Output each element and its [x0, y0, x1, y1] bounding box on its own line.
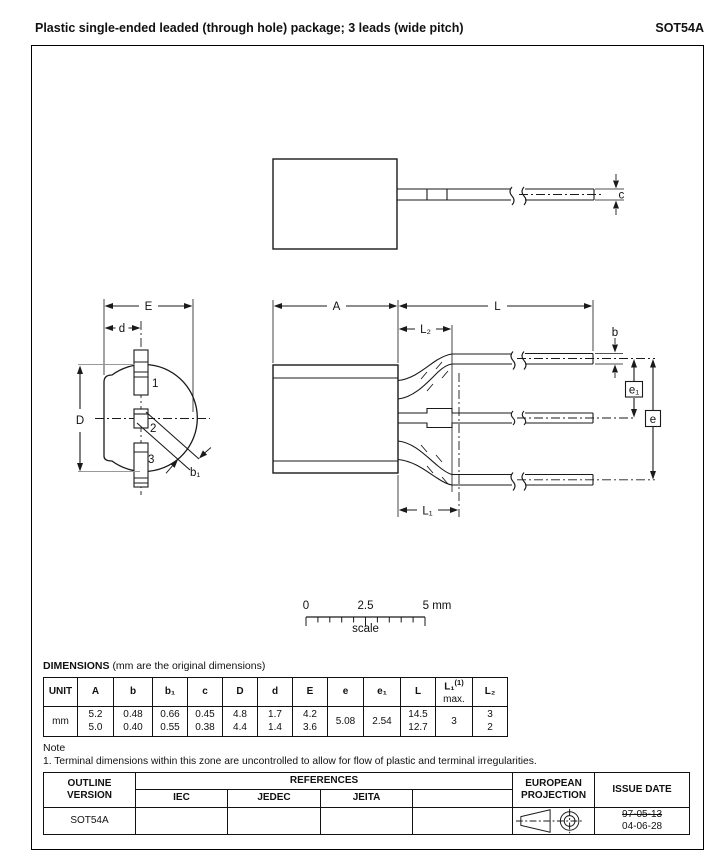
first-angle-projection-icon — [515, 808, 593, 834]
col-L: L — [401, 678, 436, 707]
lead2-side — [398, 409, 636, 428]
cell-L: 14.512.7 — [401, 707, 436, 737]
lead-top-view — [397, 189, 511, 200]
label-e: e — [650, 414, 656, 426]
dim-e: e — [646, 359, 661, 480]
label-b1: b₁ — [190, 467, 200, 479]
pin2-label: 2 — [150, 423, 156, 435]
dimensions-title: DIMENSIONS — [43, 660, 110, 672]
scale-max: 5 mm — [423, 600, 452, 612]
front-view: 1 2 3 E d — [76, 299, 211, 495]
issue-date-old: 97-05-13 — [596, 809, 688, 822]
label-L1: L₁ — [422, 506, 432, 518]
col-A: A — [78, 678, 114, 707]
dim-c: c — [613, 174, 625, 215]
col-E: E — [293, 678, 328, 707]
cell-L2: 32 — [473, 707, 508, 737]
scale-0: 0 — [303, 600, 309, 612]
label-A: A — [333, 301, 341, 313]
label-D: D — [76, 415, 84, 427]
dim-A: A — [274, 301, 398, 313]
col-e: e — [328, 678, 364, 707]
cell-E: 4.23.6 — [293, 707, 328, 737]
label-e1: e₁ — [629, 385, 639, 397]
pin1-label: 1 — [152, 378, 158, 390]
hdr-jedec: JEDEC — [228, 790, 321, 808]
dim-e1: e₁ — [626, 359, 643, 418]
label-d: d — [119, 323, 125, 335]
dimensions-heading: DIMENSIONS (mm are the original dimensio… — [43, 660, 265, 672]
body-side-view — [273, 365, 398, 473]
scale-caption: scale — [352, 623, 379, 635]
scale-mid: 2.5 — [358, 600, 374, 612]
cell-jeita — [321, 808, 413, 835]
label-L2: L₂ — [420, 324, 431, 336]
cell-issue-date: 97-05-13 04-06-28 — [595, 808, 690, 835]
cell-e1: 2.54 — [364, 707, 401, 737]
package-outline-drawing: c 1 2 3 — [0, 0, 726, 660]
issue-date-new: 04-06-28 — [596, 821, 688, 834]
note-heading: Note — [43, 742, 65, 754]
col-L2: L₂ — [473, 678, 508, 707]
lead3-front — [134, 443, 148, 487]
dimensions-table: UNIT A b b₁ c D d E e e₁ L L₁(1) max. L₂… — [43, 677, 508, 737]
cell-L1: 3 — [436, 707, 473, 737]
cell-A: 5.25.0 — [78, 707, 114, 737]
dimensions-subtitle: (mm are the original dimensions) — [112, 660, 265, 672]
hdr-issue-date: ISSUE DATE — [595, 773, 690, 808]
body-top-view — [273, 159, 397, 249]
dim-b: b — [595, 327, 623, 378]
cell-b1: 0.660.55 — [153, 707, 188, 737]
hdr-iec: IEC — [136, 790, 228, 808]
scale-bar: 0 2.5 5 mm scale — [303, 600, 452, 635]
cell-D: 4.84.4 — [223, 707, 258, 737]
top-view: c — [273, 159, 625, 249]
note-item-1: 1. Terminal dimensions within this zone … — [43, 756, 537, 767]
pin3-label: 3 — [148, 454, 154, 466]
col-b: b — [114, 678, 153, 707]
hdr-references: REFERENCES — [136, 773, 513, 790]
lead-break-marks — [510, 187, 526, 205]
cell-references-blank — [413, 808, 513, 835]
col-c: c — [188, 678, 223, 707]
col-D: D — [223, 678, 258, 707]
datasheet-page: Plastic single-ended leaded (through hol… — [0, 0, 726, 859]
dim-L1: L₁ — [399, 506, 459, 518]
col-L1: L₁(1) max. — [436, 678, 473, 707]
cell-b: 0.480.40 — [114, 707, 153, 737]
hdr-jeita: JEITA — [321, 790, 413, 808]
cell-unit: mm — [44, 707, 78, 737]
dim-d: d — [105, 323, 141, 335]
label-E: E — [145, 301, 153, 313]
cell-c: 0.450.38 — [188, 707, 223, 737]
lead2-front — [134, 409, 148, 428]
lead1-side — [398, 352, 655, 400]
dim-L: L — [399, 301, 593, 313]
side-view: A L L₂ L₁ — [273, 300, 661, 518]
cell-e: 5.08 — [328, 707, 364, 737]
cell-jedec — [228, 808, 321, 835]
dim-D: D — [76, 365, 140, 472]
label-b: b — [612, 327, 618, 339]
revision-table: OUTLINE VERSION REFERENCES EUROPEAN PROJ… — [43, 772, 690, 835]
hdr-european-projection: EUROPEAN PROJECTION — [513, 773, 595, 808]
lead3-side — [398, 441, 655, 491]
col-unit: UNIT — [44, 678, 78, 707]
dim-L2: L₂ — [399, 324, 452, 336]
cell-d: 1.71.4 — [258, 707, 293, 737]
hdr-outline-version: OUTLINE VERSION — [44, 773, 136, 808]
label-c: c — [619, 190, 625, 202]
cell-iec — [136, 808, 228, 835]
cell-outline-version: SOT54A — [44, 808, 136, 835]
hdr-references-blank — [413, 790, 513, 808]
col-d: d — [258, 678, 293, 707]
cell-projection-symbol — [513, 808, 595, 835]
label-L: L — [494, 301, 501, 313]
col-b1: b₁ — [153, 678, 188, 707]
col-e1: e₁ — [364, 678, 401, 707]
